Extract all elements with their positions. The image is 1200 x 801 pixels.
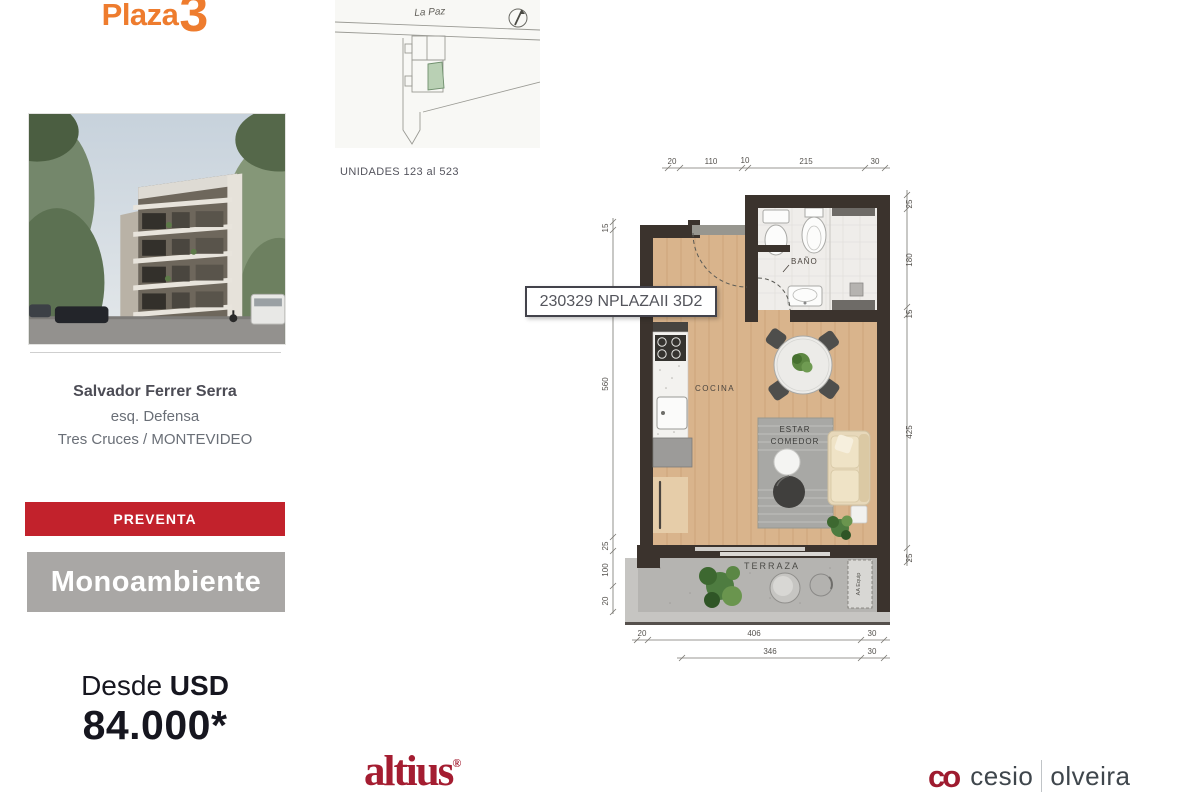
- dim-label: 346: [763, 647, 777, 656]
- aa-equip-label: AA Equip: [856, 573, 862, 596]
- logo-divider: [1041, 760, 1042, 792]
- price-block: Desde USD 84.000*: [0, 670, 310, 749]
- highlighted-unit[interactable]: [428, 62, 444, 90]
- dim-label: 215: [799, 157, 813, 166]
- dim-label: 25: [905, 199, 914, 208]
- altius-logo-text: altius: [364, 748, 452, 795]
- altius-logo: altius®: [364, 750, 461, 793]
- dim-label: 25: [905, 553, 914, 562]
- street-label: La Paz: [414, 6, 446, 19]
- dim-label: 30: [868, 629, 877, 638]
- cesio-olveira-logo: co cesio olveira: [928, 760, 1130, 792]
- dim-label: 20: [638, 629, 647, 638]
- plaza3-logo-text: Plaza: [102, 0, 179, 32]
- price-prefix: Desde: [81, 670, 162, 701]
- bath-label: BAÑO: [791, 257, 818, 266]
- dim-label: 15: [601, 223, 610, 232]
- building-photo: [28, 113, 286, 345]
- olveira-logo-text: olveira: [1050, 761, 1130, 792]
- unit-type-badge: Monoambiente: [27, 552, 285, 612]
- dim-label: 30: [871, 157, 880, 166]
- plaza3-logo-number: 3: [179, 0, 208, 43]
- units-caption: UNIDADES 123 al 523: [340, 166, 459, 178]
- plaza3-logo: Plaza3: [0, 0, 310, 44]
- price-currency: USD: [170, 670, 229, 701]
- building-photo-illustration: [29, 114, 285, 344]
- dim-label: 20: [601, 596, 610, 605]
- cesio-logo-text: cesio: [970, 761, 1033, 792]
- dim-label: 406: [747, 629, 761, 638]
- address-street: Salvador Ferrer Serra: [0, 383, 310, 401]
- address-corner: esq. Defensa: [0, 408, 310, 425]
- unit-code-tooltip: 230329 NPLAZAII 3D2: [525, 286, 717, 317]
- brochure-page: Plaza3: [0, 0, 1200, 801]
- kitchen-label: COCINA: [695, 384, 735, 393]
- dim-label: 560: [601, 377, 610, 391]
- terrace-label: TERRAZA: [744, 561, 800, 571]
- dim-label: 100: [601, 563, 610, 577]
- dim-label: 110: [705, 157, 718, 166]
- dim-label: 10: [741, 156, 750, 165]
- floor-plan[interactable]: COCINA BAÑO ESTAR COMEDOR TERRAZA AA Equ…: [600, 148, 940, 678]
- dim-label: 180: [905, 253, 914, 267]
- dim-label: 15: [905, 309, 914, 318]
- dim-label: 30: [868, 647, 877, 656]
- status-badge: PREVENTA: [25, 502, 285, 536]
- living-label-line1: ESTAR: [779, 425, 810, 434]
- co-infinity-icon: co: [928, 761, 958, 792]
- living-label-line2: COMEDOR: [771, 437, 820, 446]
- dim-label: 20: [668, 157, 677, 166]
- dim-label: 425: [905, 425, 914, 439]
- price-amount: 84.000*: [0, 702, 310, 749]
- address-city: Tres Cruces / MONTEVIDEO: [0, 431, 310, 448]
- address-divider: [30, 352, 281, 353]
- dim-label: 25: [601, 541, 610, 550]
- registered-mark-icon: ®: [452, 756, 461, 770]
- site-plan-sketch: La Paz: [335, 0, 540, 148]
